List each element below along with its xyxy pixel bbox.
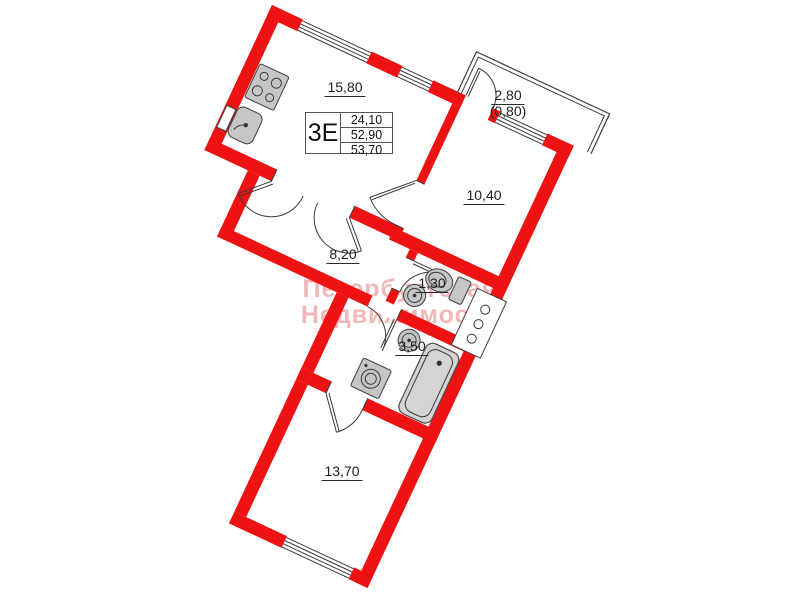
unit-total-area: 53,70 xyxy=(341,143,392,157)
window-bedroom xyxy=(282,537,354,578)
room-label-balcony-reduced: (0,80) xyxy=(488,103,529,119)
floor-plan-drawing xyxy=(0,0,800,600)
hallway-area: 8,20 xyxy=(326,246,359,264)
unit-type: 3Е xyxy=(306,113,341,153)
room-label-hallway: 8,20 xyxy=(326,246,359,264)
balcony-outline xyxy=(458,52,610,154)
kitchen-living-area: 15,80 xyxy=(324,79,365,97)
room-label-wc: 1,30 xyxy=(415,275,448,293)
room-label-main: 10,40 xyxy=(463,187,504,205)
room-main-area: 10,40 xyxy=(463,187,504,205)
room-label-bathroom: 3,50 xyxy=(395,338,428,356)
floor-plan-page: Петербургская Недвижимость xyxy=(0,0,800,600)
window-kitchen-1 xyxy=(298,21,371,63)
unit-info-table: 3Е 24,10 52,90 53,70 xyxy=(305,112,393,154)
bathroom-area: 3,50 xyxy=(395,338,428,356)
unit-values: 24,10 52,90 53,70 xyxy=(341,113,392,153)
bedroom-area: 13,70 xyxy=(321,463,362,481)
wc-area: 1,30 xyxy=(415,275,448,293)
window-kitchen-2 xyxy=(397,67,432,91)
room-label-kitchen-living: 15,80 xyxy=(324,79,365,97)
balcony-area-reduced: (0,80) xyxy=(488,103,529,119)
unit-area: 52,90 xyxy=(341,128,392,143)
unit-living-area: 24,10 xyxy=(341,113,392,128)
room-label-bedroom: 13,70 xyxy=(321,463,362,481)
